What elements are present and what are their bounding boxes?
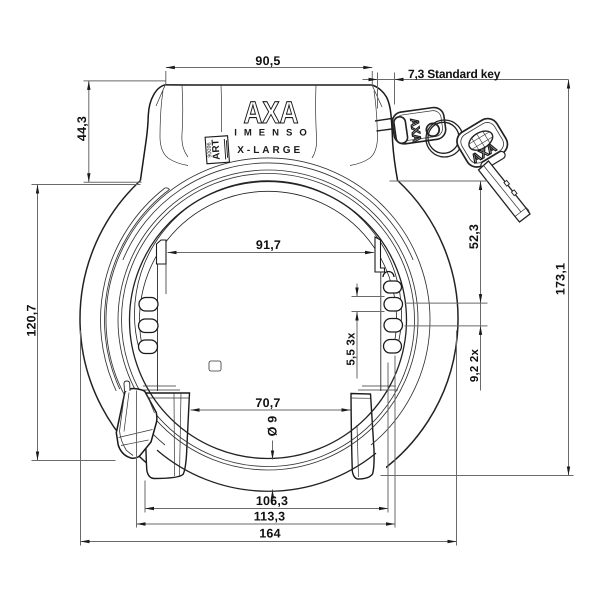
svg-text:90,5: 90,5 [255, 54, 280, 68]
svg-text:164: 164 [259, 526, 280, 540]
svg-text:173,1: 173,1 [554, 263, 568, 295]
svg-text:106,3: 106,3 [256, 494, 288, 508]
svg-text:91,7: 91,7 [256, 238, 281, 252]
svg-text:ART: ART [210, 139, 222, 160]
svg-text:IMENSO: IMENSO [234, 128, 313, 139]
svg-text:AXA: AXA [244, 95, 299, 130]
svg-text:Ø 9: Ø 9 [266, 416, 280, 437]
svg-text:70,7: 70,7 [255, 396, 280, 410]
svg-text:44,3: 44,3 [75, 116, 89, 141]
svg-text:7,3 Standard key: 7,3 Standard key [408, 67, 501, 81]
svg-text:9,2 2x: 9,2 2x [469, 349, 481, 383]
svg-text:52,3: 52,3 [467, 224, 481, 249]
svg-text:113,3: 113,3 [254, 510, 286, 524]
svg-text:5,5 3x: 5,5 3x [346, 332, 358, 366]
svg-text:120,7: 120,7 [24, 304, 38, 336]
svg-text:X-LARGE: X-LARGE [237, 145, 303, 156]
